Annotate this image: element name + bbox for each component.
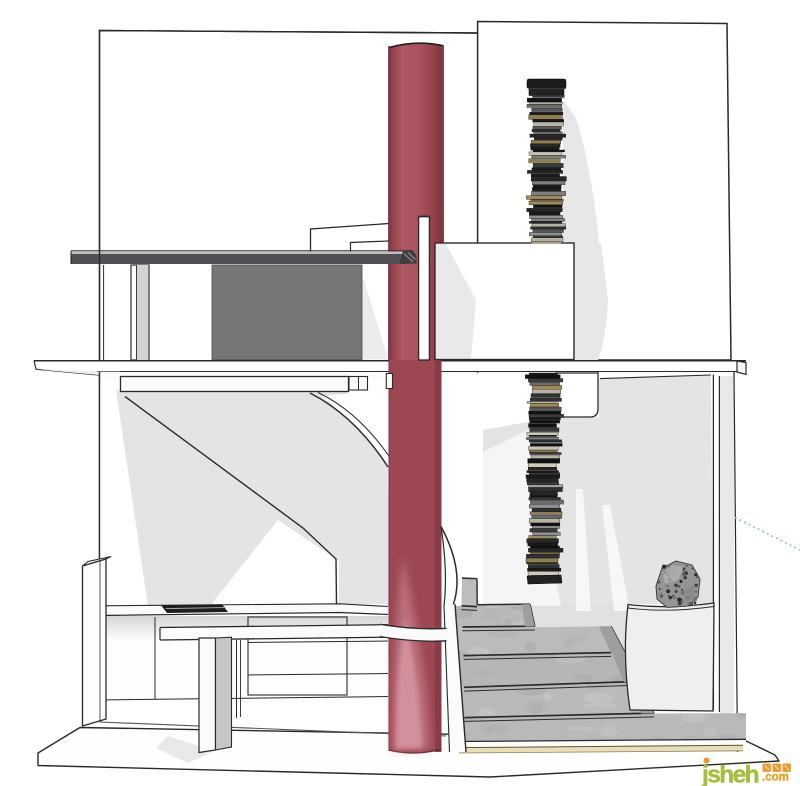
svg-text:jsheh: jsheh xyxy=(701,762,759,786)
svg-text:.com: .com xyxy=(762,772,789,784)
